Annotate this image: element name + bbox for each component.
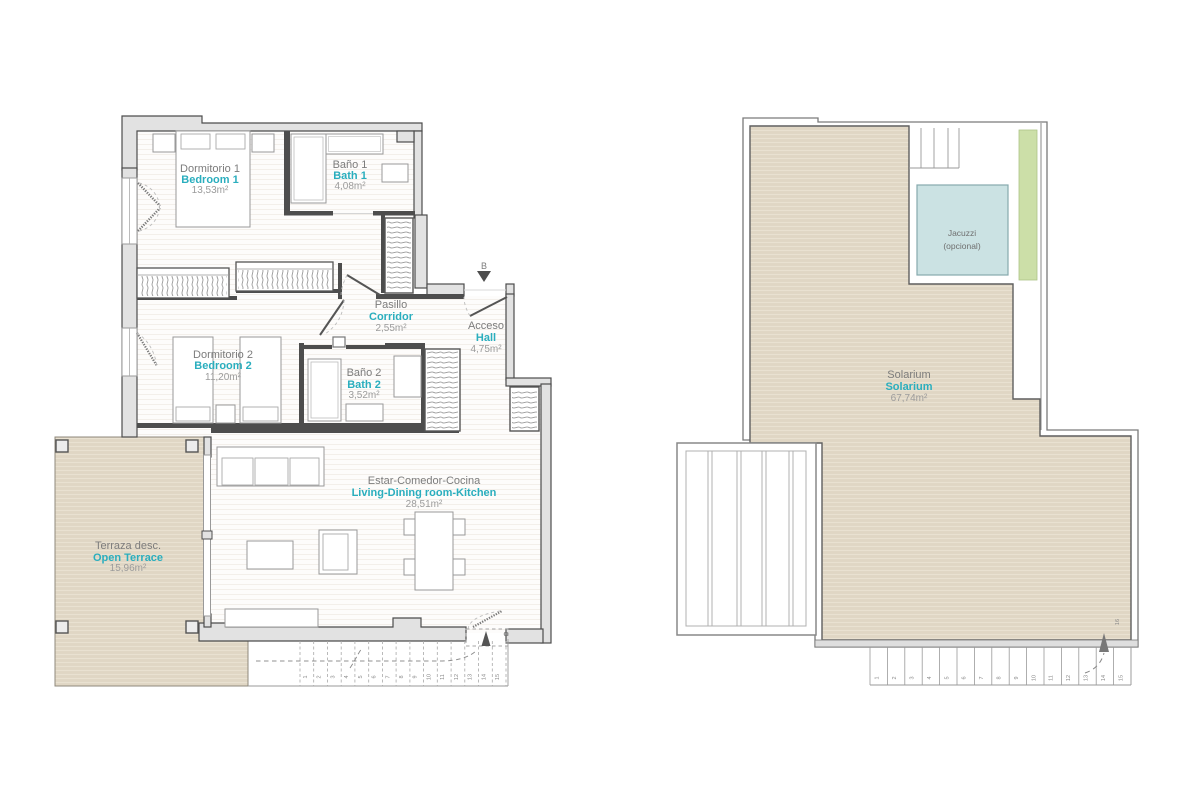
svg-text:3,52m²: 3,52m² bbox=[348, 390, 380, 401]
svg-text:Hall: Hall bbox=[476, 332, 496, 344]
svg-text:1: 1 bbox=[303, 675, 309, 678]
svg-text:Estar-Comedor-Cocina: Estar-Comedor-Cocina bbox=[368, 475, 481, 487]
svg-text:6: 6 bbox=[962, 676, 968, 679]
svg-text:13: 13 bbox=[1084, 675, 1090, 681]
svg-text:Pasillo: Pasillo bbox=[375, 299, 407, 311]
svg-text:(opcional): (opcional) bbox=[943, 241, 980, 251]
svg-text:8: 8 bbox=[997, 676, 1003, 679]
svg-text:1: 1 bbox=[875, 676, 881, 679]
svg-text:Living-Dining room-Kitchen: Living-Dining room-Kitchen bbox=[352, 487, 497, 499]
svg-text:11: 11 bbox=[1049, 675, 1055, 681]
svg-text:Baño 2: Baño 2 bbox=[347, 367, 382, 379]
svg-text:2: 2 bbox=[317, 675, 323, 678]
svg-text:8: 8 bbox=[399, 675, 405, 678]
svg-text:67,74m²: 67,74m² bbox=[891, 393, 928, 404]
svg-text:10: 10 bbox=[1031, 675, 1037, 681]
svg-text:15: 15 bbox=[495, 674, 501, 680]
svg-text:14: 14 bbox=[481, 674, 487, 680]
svg-text:4: 4 bbox=[927, 676, 933, 679]
svg-text:15: 15 bbox=[1118, 675, 1124, 681]
svg-text:9: 9 bbox=[1014, 676, 1020, 679]
svg-text:Solarium: Solarium bbox=[885, 381, 932, 393]
svg-text:Jacuzzi: Jacuzzi bbox=[948, 228, 976, 238]
svg-text:4,75m²: 4,75m² bbox=[470, 344, 502, 355]
svg-text:2: 2 bbox=[892, 676, 898, 679]
svg-text:11,20m²: 11,20m² bbox=[205, 372, 242, 383]
svg-text:7: 7 bbox=[385, 675, 391, 678]
svg-text:7: 7 bbox=[979, 676, 985, 679]
svg-text:11: 11 bbox=[440, 674, 446, 680]
svg-text:Solarium: Solarium bbox=[887, 369, 930, 381]
svg-text:3: 3 bbox=[910, 676, 916, 679]
svg-text:13,53m²: 13,53m² bbox=[192, 185, 229, 196]
svg-text:15,96m²: 15,96m² bbox=[110, 563, 147, 574]
svg-text:13: 13 bbox=[468, 674, 474, 680]
svg-text:Terraza desc.: Terraza desc. bbox=[95, 540, 161, 552]
svg-text:10: 10 bbox=[427, 674, 433, 680]
svg-text:Bedroom 2: Bedroom 2 bbox=[194, 360, 251, 372]
svg-text:6: 6 bbox=[372, 675, 378, 678]
svg-text:5: 5 bbox=[358, 675, 364, 678]
svg-text:9: 9 bbox=[413, 675, 419, 678]
svg-text:B: B bbox=[481, 261, 487, 271]
svg-text:4: 4 bbox=[344, 675, 350, 678]
svg-text:12: 12 bbox=[454, 674, 460, 680]
svg-text:16: 16 bbox=[1115, 619, 1121, 625]
svg-text:28,51m²: 28,51m² bbox=[406, 499, 443, 510]
svg-text:4,08m²: 4,08m² bbox=[334, 181, 366, 192]
svg-text:Acceso: Acceso bbox=[468, 320, 504, 332]
svg-text:2,55m²: 2,55m² bbox=[375, 323, 407, 334]
svg-text:3: 3 bbox=[330, 675, 336, 678]
svg-text:5: 5 bbox=[944, 676, 950, 679]
svg-text:Corridor: Corridor bbox=[369, 311, 414, 323]
svg-text:14: 14 bbox=[1101, 675, 1107, 681]
svg-text:12: 12 bbox=[1066, 675, 1072, 681]
